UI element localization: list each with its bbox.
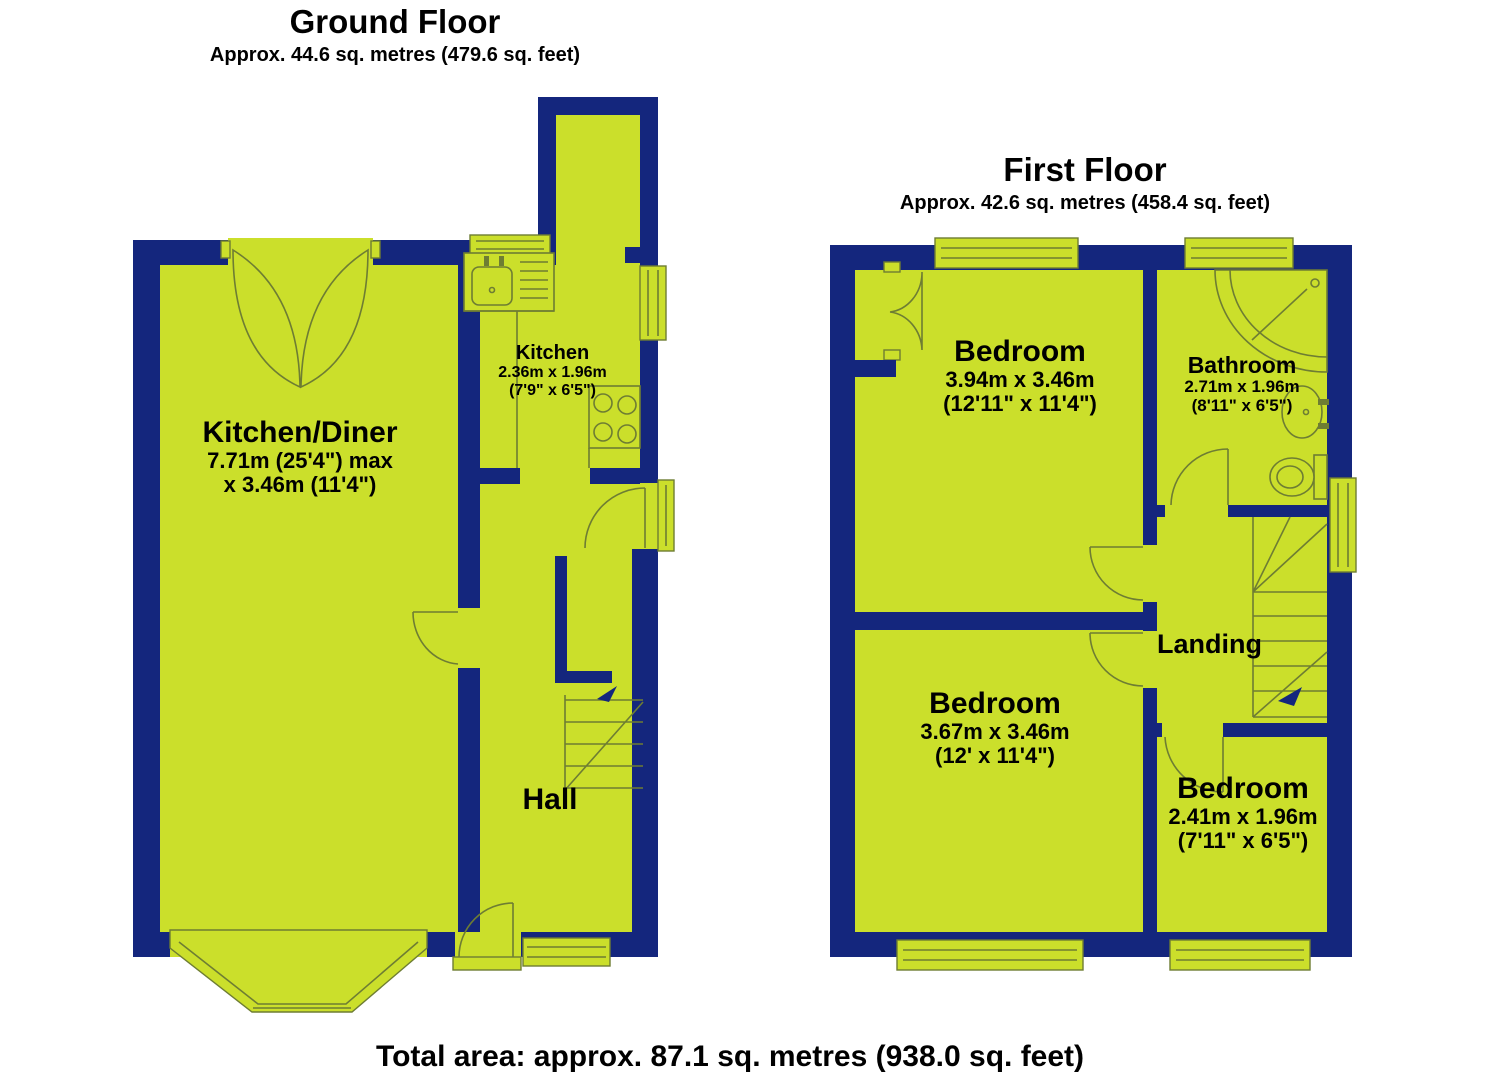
- room-name: Landing: [1127, 630, 1292, 660]
- room-label-kitchen-diner: Kitchen/Diner 7.71m (25'4") max x 3.46m …: [150, 416, 450, 497]
- bathroom-door-opening: [1165, 505, 1228, 517]
- utility-corridor-floor: [556, 115, 640, 267]
- bedroom1-floor: [855, 270, 1143, 612]
- room-dims: 2.41m x 1.96m: [1148, 805, 1338, 829]
- room-dims: x 3.46m (11'4"): [150, 473, 450, 497]
- first-floor-subtitle: Approx. 42.6 sq. metres (458.4 sq. feet): [820, 192, 1350, 214]
- bedroom2-floor: [855, 630, 1143, 932]
- room-label-bedroom3: Bedroom 2.41m x 1.96m (7'11" x 6'5"): [1148, 772, 1338, 853]
- room-label-bathroom: Bathroom 2.71m x 1.96m (8'11" x 6'5"): [1152, 353, 1332, 416]
- bay-window: [170, 930, 427, 1012]
- room-dims: (12' x 11'4"): [845, 744, 1145, 768]
- room-dims: 2.71m x 1.96m: [1152, 378, 1332, 397]
- ground-floor-subtitle: Approx. 44.6 sq. metres (479.6 sq. feet): [155, 44, 635, 66]
- bedroom3-door-opening: [1160, 723, 1223, 737]
- room-name: Hall: [470, 783, 630, 816]
- room-dims: 2.36m x 1.96m: [455, 364, 650, 382]
- room-label-kitchen: Kitchen 2.36m x 1.96m (7'9" x 6'5"): [455, 342, 650, 399]
- room-name: Kitchen/Diner: [150, 416, 450, 449]
- room-dims: 7.71m (25'4") max: [150, 449, 450, 473]
- room-dims: 3.94m x 3.46m: [870, 368, 1170, 392]
- room-name: Bathroom: [1152, 353, 1332, 378]
- room-dims: (8'11" x 6'5"): [1152, 397, 1332, 416]
- hall-window: [523, 938, 610, 966]
- room-dims: (12'11" x 11'4"): [870, 392, 1170, 416]
- ground-floor-header: Ground Floor Approx. 44.6 sq. metres (47…: [155, 4, 635, 66]
- total-area: Total area: approx. 87.1 sq. metres (938…: [0, 1040, 1460, 1073]
- bathroom-window: [1185, 238, 1293, 268]
- floorplan-page: Ground Floor Approx. 44.6 sq. metres (47…: [0, 0, 1485, 1080]
- room-name: Bedroom: [1148, 772, 1338, 805]
- room-dims: 3.67m x 3.46m: [845, 720, 1145, 744]
- kitchen-diner-floor: [160, 265, 458, 932]
- bedroom1-window: [935, 238, 1078, 268]
- stairs-window: [1330, 478, 1356, 572]
- room-label-hall: Hall: [470, 783, 630, 816]
- room-name: Kitchen: [455, 342, 650, 364]
- kitchen-diner-door-opening: [458, 608, 480, 668]
- hatch-opening: [520, 468, 590, 484]
- first-floor-header: First Floor Approx. 42.6 sq. metres (458…: [820, 152, 1350, 214]
- room-name: Bedroom: [845, 687, 1145, 720]
- room-name: Bedroom: [870, 335, 1170, 368]
- bedroom1-door-opening: [1143, 545, 1157, 602]
- front-door-opening: [455, 930, 521, 957]
- kitchen-window: [640, 266, 666, 340]
- bedroom2-window: [897, 940, 1083, 970]
- room-label-bedroom1: Bedroom 3.94m x 3.46m (12'11" x 11'4"): [870, 335, 1170, 416]
- room-dims: (7'9" x 6'5"): [455, 382, 650, 400]
- toilet: [1270, 455, 1327, 499]
- ground-floor-title: Ground Floor: [155, 4, 635, 40]
- room-label-landing: Landing: [1127, 630, 1292, 660]
- bedroom3-window: [1170, 940, 1310, 970]
- room-dims: (7'11" x 6'5"): [1148, 829, 1338, 853]
- room-label-bedroom2: Bedroom 3.67m x 3.46m (12' x 11'4"): [845, 687, 1145, 768]
- hall-floor: [480, 482, 632, 932]
- first-floor-title: First Floor: [820, 152, 1350, 188]
- ground-floor-plan: [133, 97, 674, 1012]
